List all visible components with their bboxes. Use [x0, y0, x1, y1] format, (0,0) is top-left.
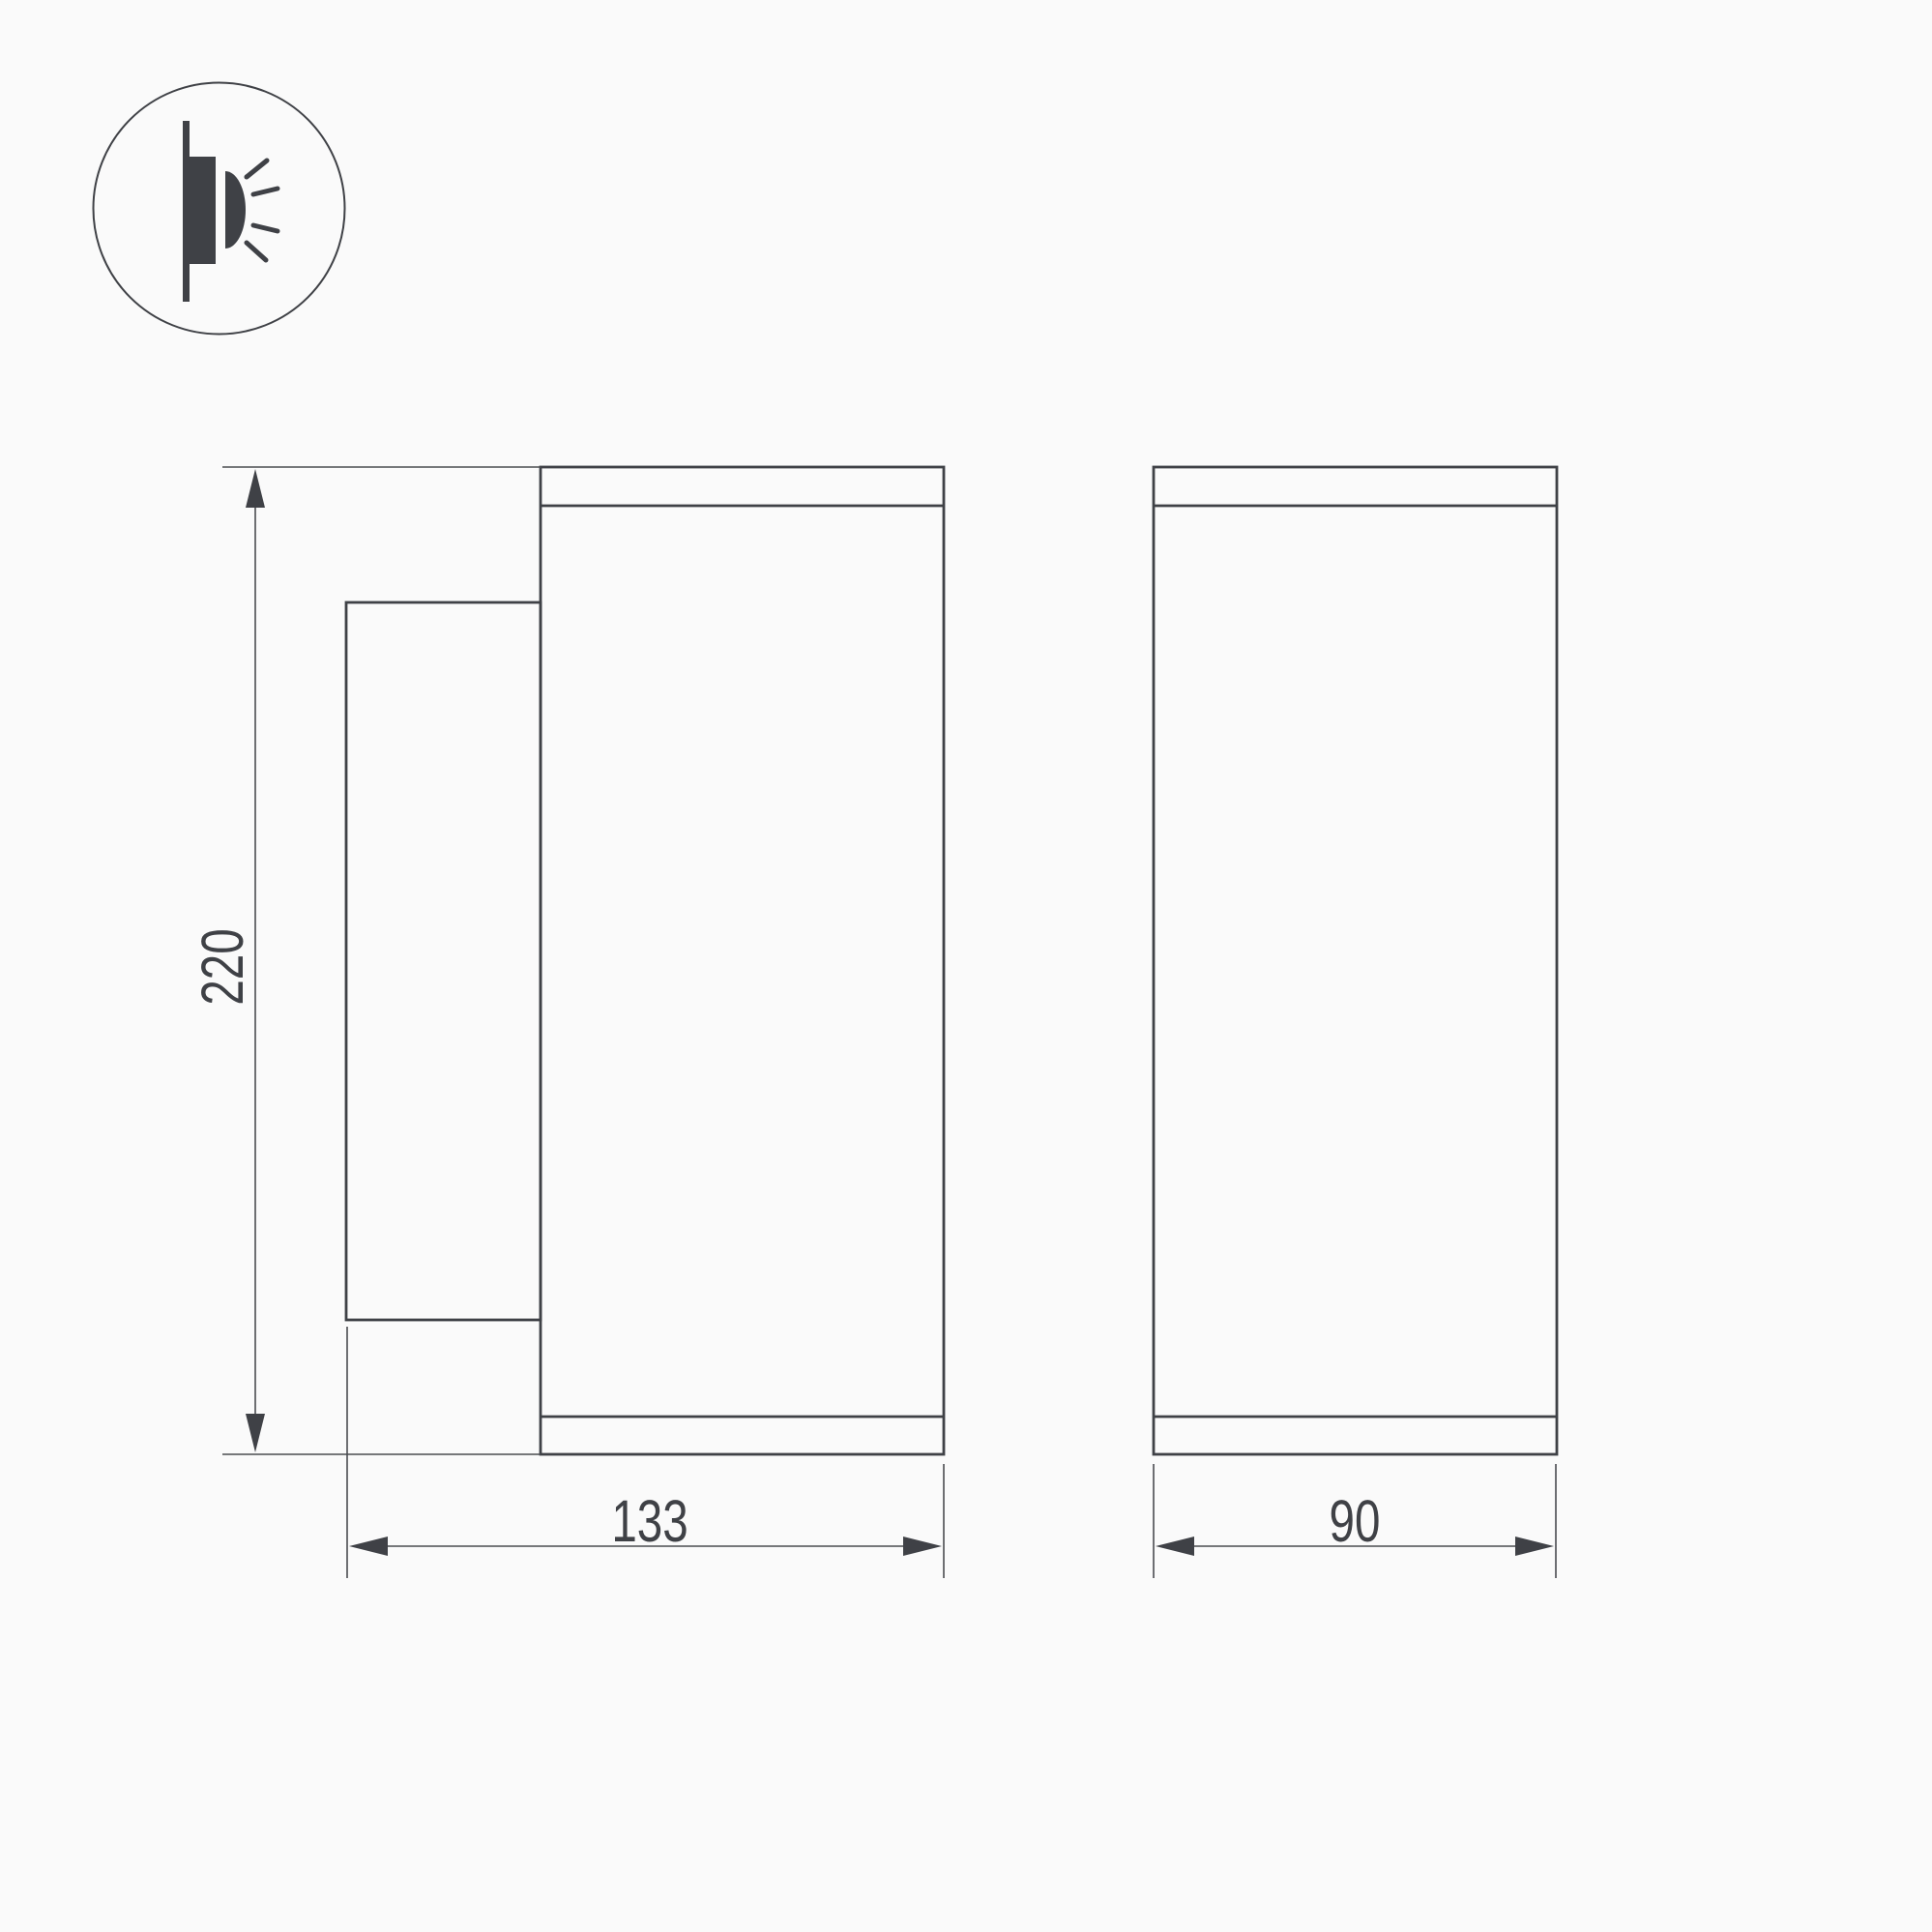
depth-dimension: 133	[347, 1327, 944, 1578]
side-view-body-outline	[541, 467, 944, 1454]
front-view	[1154, 467, 1557, 1454]
side-view	[346, 467, 944, 1454]
wall-surface-line	[183, 121, 190, 302]
mounting-plate-outline	[346, 602, 541, 1320]
wall-lamp-dimension-drawing: 220 133 90	[0, 0, 1932, 1932]
arrowhead-right-icon	[1515, 1537, 1554, 1556]
front-view-body-outline	[1154, 467, 1557, 1454]
light-ray-icon	[247, 243, 266, 260]
lamp-body-glyph	[190, 157, 216, 264]
arrowhead-up-icon	[246, 469, 265, 508]
light-ray-icon	[253, 189, 278, 194]
wall-mounted-light-icon	[94, 83, 345, 335]
light-beam-glyph	[225, 171, 246, 249]
arrowhead-right-icon	[903, 1537, 942, 1556]
height-dimension-label: 220	[189, 928, 255, 1005]
height-dimension: 220	[189, 467, 541, 1454]
width-dimension: 90	[1154, 1464, 1556, 1578]
arrowhead-left-icon	[349, 1537, 388, 1556]
arrowhead-left-icon	[1156, 1537, 1194, 1556]
dimension-drawing-page: 220 133 90	[0, 0, 1932, 1932]
icon-circle-outline	[94, 83, 345, 335]
depth-dimension-label: 133	[611, 1487, 688, 1554]
light-ray-icon	[247, 161, 267, 177]
width-dimension-label: 90	[1330, 1487, 1381, 1554]
arrowhead-down-icon	[246, 1414, 265, 1452]
light-ray-icon	[253, 225, 278, 231]
